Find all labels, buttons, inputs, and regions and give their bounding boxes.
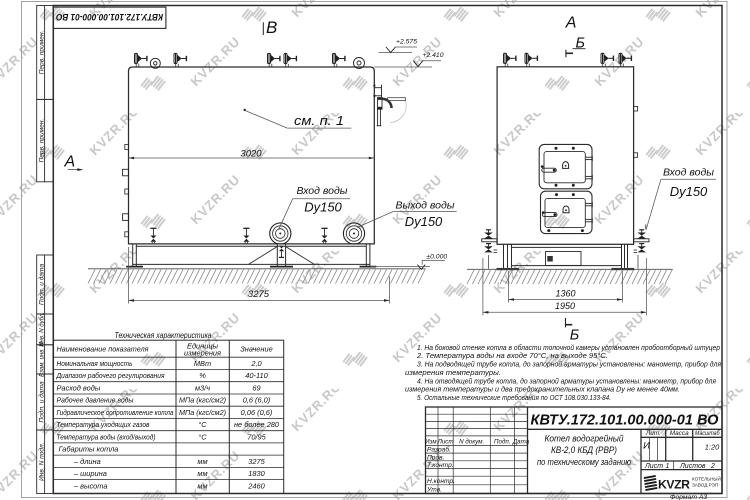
svg-text:Котел водогрейный: Котел водогрейный xyxy=(545,434,624,444)
svg-text:1830: 1830 xyxy=(248,469,265,478)
svg-text:А: А xyxy=(565,15,577,32)
svg-text:Техническая характеристика: Техническая характеристика xyxy=(115,330,212,340)
svg-text:Номинальная мощность: Номинальная мощность xyxy=(57,359,133,368)
svg-text:Рабочее давление воды: Рабочее давление воды xyxy=(57,396,135,405)
svg-text:Лист: Лист xyxy=(644,463,663,470)
svg-text:Вход воды: Вход воды xyxy=(297,185,348,197)
svg-text:Н.контр.: Н.контр. xyxy=(427,478,455,485)
svg-text:Взам. инв. N: Взам. инв. N xyxy=(39,341,45,377)
svg-text:см. п. 1: см. п. 1 xyxy=(294,114,344,128)
svg-text:Перв. примен.: Перв. примен. xyxy=(38,119,45,163)
svg-text:Формат А3: Формат А3 xyxy=(670,494,707,500)
svg-text:0,06 (0,6): 0,06 (0,6) xyxy=(241,408,273,417)
svg-text:2460: 2460 xyxy=(247,481,265,490)
svg-text:Вход воды: Вход воды xyxy=(663,167,714,179)
svg-text:%: % xyxy=(199,371,206,380)
svg-text:мм: мм xyxy=(197,457,207,466)
svg-text:КВ-2,0 КБД (РВР): КВ-2,0 КБД (РВР) xyxy=(551,445,617,455)
svg-text:Б: Б xyxy=(570,327,579,343)
svg-text:мм: мм xyxy=(197,481,207,490)
svg-text:3275: 3275 xyxy=(248,457,265,466)
svg-text:Гидравлическое сопротивление к: Гидравлическое сопротивление котла xyxy=(57,408,174,417)
svg-text:Выход воды: Выход воды xyxy=(395,199,454,211)
svg-text:И: И xyxy=(643,441,650,452)
svg-text:Габариты котла: Габариты котла xyxy=(59,445,119,454)
svg-text:В: В xyxy=(266,18,277,37)
svg-text:1950: 1950 xyxy=(555,301,575,311)
svg-text:ЗАВОД РЭП: ЗАВОД РЭП xyxy=(692,483,718,488)
svg-text:Dy150: Dy150 xyxy=(670,184,708,199)
svg-text:Dy150: Dy150 xyxy=(405,214,443,229)
svg-text:– длина: – длина xyxy=(73,457,101,466)
svg-text:N докум.: N докум. xyxy=(459,439,484,446)
svg-text:Расход воды: Расход воды xyxy=(57,384,101,393)
svg-text:2,0: 2,0 xyxy=(250,359,262,368)
svg-text:°С: °С xyxy=(198,432,207,441)
svg-text:А: А xyxy=(64,153,76,170)
svg-text:– высота: – высота xyxy=(73,481,107,490)
svg-text:Б: Б xyxy=(576,36,585,52)
svg-text:Наименование показателя: Наименование показателя xyxy=(57,344,149,353)
svg-text:Масштаб: Масштаб xyxy=(695,429,720,437)
svg-text:МПа (кгс/см2): МПа (кгс/см2) xyxy=(179,396,227,405)
svg-text:5. Остальные технические треб: 5. Остальные технические требования по О… xyxy=(417,393,611,402)
svg-text:1:20: 1:20 xyxy=(705,442,720,451)
svg-text:Листов: Листов xyxy=(679,463,706,470)
svg-text:КВТУ.172.101.00.000-01 ВО: КВТУ.172.101.00.000-01 ВО xyxy=(56,11,164,22)
svg-text:Dy150: Dy150 xyxy=(304,200,342,215)
svg-text:Значение: Значение xyxy=(240,344,272,353)
svg-text:– ширина: – ширина xyxy=(73,469,107,478)
svg-text:Подп. и дата: Подп. и дата xyxy=(37,264,45,306)
svg-text:не более 280: не более 280 xyxy=(234,420,280,429)
svg-text:±0.000: ±0.000 xyxy=(426,254,447,261)
svg-text:мм: мм xyxy=(197,469,207,478)
svg-text:+2.575: +2.575 xyxy=(396,39,417,46)
svg-text:Лист: Лист xyxy=(437,439,454,446)
svg-text:KVZR: KVZR xyxy=(658,477,690,491)
svg-text:1: 1 xyxy=(666,463,670,470)
svg-text:0,6 (6,0): 0,6 (6,0) xyxy=(243,396,271,405)
svg-text:70/95: 70/95 xyxy=(247,432,266,441)
svg-text:МПа (кгс/см2): МПа (кгс/см2) xyxy=(179,408,227,417)
svg-text:Подп.: Подп. xyxy=(494,439,510,446)
svg-text:Температура воды (вход/выход): Температура воды (вход/выход) xyxy=(57,432,156,441)
svg-text:Пров.: Пров. xyxy=(427,454,445,461)
svg-text:измерения: измерения xyxy=(184,349,221,358)
svg-text:Масса: Масса xyxy=(670,430,689,437)
svg-text:Дата: Дата xyxy=(512,439,530,446)
svg-text:Разраб.: Разраб. xyxy=(427,446,451,454)
svg-text:Перв. примен.: Перв. примен. xyxy=(38,30,45,74)
svg-text:КВТУ.172.101.00.000-01 ВО: КВТУ.172.101.00.000-01 ВО xyxy=(531,412,720,428)
svg-text:КОТЕЛЬНЫЙ: КОТЕЛЬНЫЙ xyxy=(692,475,721,482)
svg-text:Изм.: Изм. xyxy=(425,439,438,446)
svg-text:1360: 1360 xyxy=(555,288,575,298)
svg-text:м3/ч: м3/ч xyxy=(195,384,210,393)
svg-text:Температура уходящих газов: Температура уходящих газов xyxy=(57,420,150,429)
svg-text:Т.контр.: Т.контр. xyxy=(427,462,454,469)
svg-text:69: 69 xyxy=(252,384,260,393)
svg-text:Подп. и дата: Подп. и дата xyxy=(37,381,45,423)
svg-text:Инв. N подл.: Инв. N подл. xyxy=(37,442,45,481)
svg-text:3275: 3275 xyxy=(248,289,270,300)
svg-text:МВт: МВт xyxy=(194,359,211,368)
svg-text:40-110: 40-110 xyxy=(245,371,268,380)
svg-text:Лит.: Лит. xyxy=(645,430,661,437)
svg-text:+2.410: +2.410 xyxy=(423,52,444,59)
svg-text:°С: °С xyxy=(198,420,207,429)
svg-text:3020: 3020 xyxy=(240,148,262,159)
svg-text:по техническому заданию: по техническому заданию xyxy=(537,457,631,467)
svg-text:2: 2 xyxy=(710,463,715,470)
svg-text:Утв.: Утв. xyxy=(426,487,442,494)
svg-text:Инв. N дубл.: Инв. N дубл. xyxy=(39,312,45,347)
svg-text:Диапазон рабочего регулировани: Диапазон рабочего регулирования xyxy=(56,371,165,380)
